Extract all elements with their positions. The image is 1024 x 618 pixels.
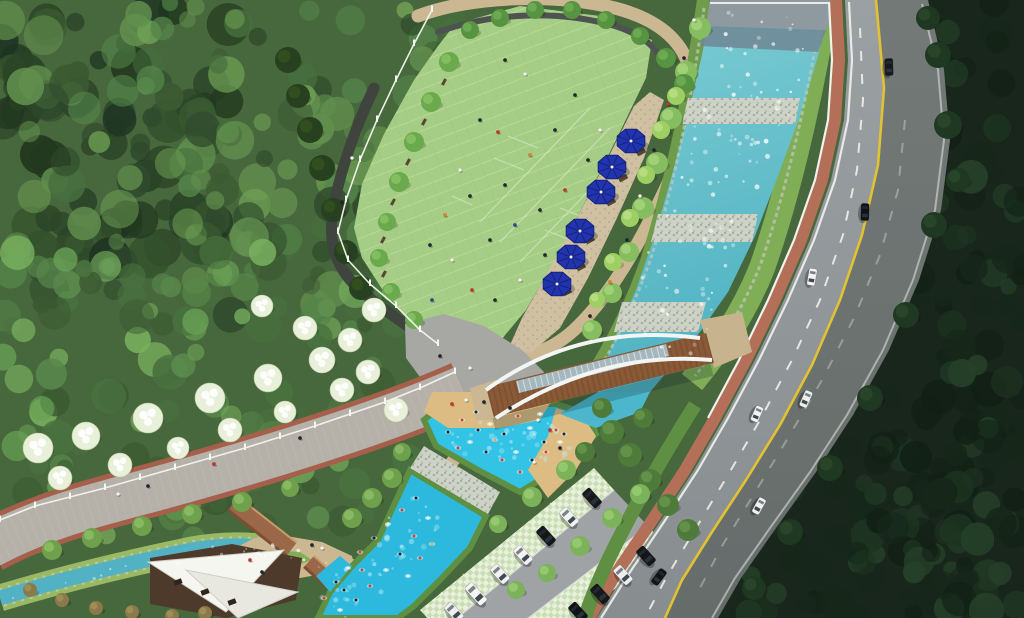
scene-canvas [0, 0, 1024, 618]
stream-culvert-bridge [706, 0, 838, 30]
park-aerial-rendering [0, 0, 1024, 618]
stone-weir-3 [614, 302, 706, 332]
stone-weir-1 [682, 98, 800, 124]
